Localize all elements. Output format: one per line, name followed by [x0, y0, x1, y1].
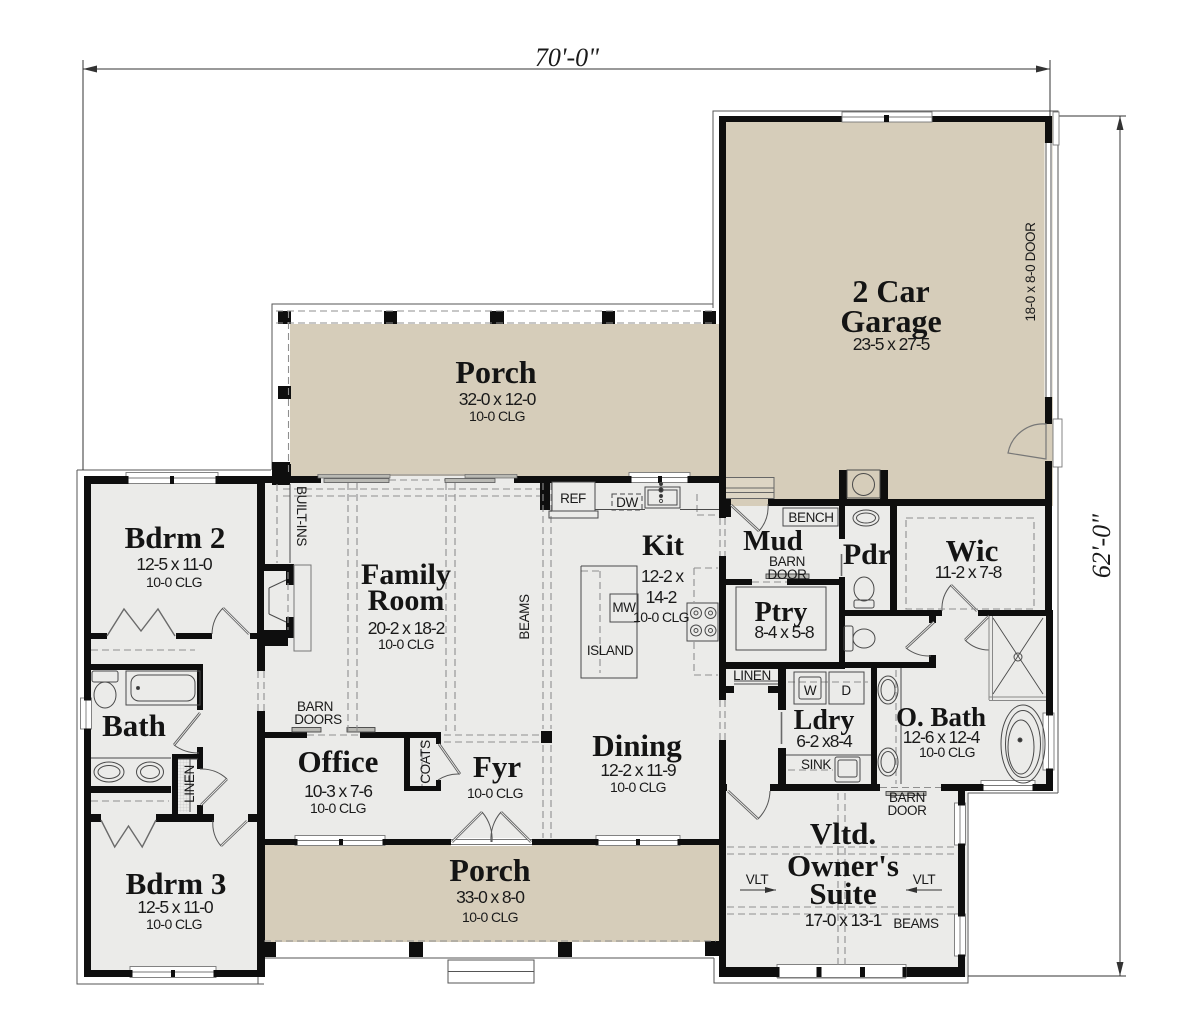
- svg-text:Bath: Bath: [102, 708, 166, 743]
- svg-text:MW: MW: [612, 600, 636, 615]
- svg-text:32-0 x 12-0: 32-0 x 12-0: [459, 389, 537, 409]
- svg-text:10-0 CLG: 10-0 CLG: [378, 636, 434, 652]
- svg-text:10-0 CLG: 10-0 CLG: [610, 779, 666, 795]
- svg-text:33-0 x 8-0: 33-0 x 8-0: [456, 887, 525, 907]
- svg-text:17-0 x 13-1: 17-0 x 13-1: [805, 910, 882, 930]
- svg-text:Vltd.: Vltd.: [810, 816, 876, 851]
- svg-text:Pdr: Pdr: [843, 538, 891, 571]
- svg-text:Bdrm 3: Bdrm 3: [126, 866, 227, 901]
- svg-text:Kit: Kit: [642, 529, 684, 562]
- svg-text:DOOR: DOOR: [768, 567, 808, 582]
- svg-text:DOOR: DOOR: [888, 803, 928, 818]
- svg-text:6-2 x8-4: 6-2 x8-4: [796, 731, 853, 751]
- svg-text:10-0 CLG: 10-0 CLG: [146, 574, 202, 590]
- svg-text:DOORS: DOORS: [294, 712, 342, 727]
- svg-text:VLT: VLT: [746, 872, 769, 887]
- svg-text:LINEN: LINEN: [182, 765, 197, 803]
- svg-text:8-4 x 5-8: 8-4 x 5-8: [754, 622, 814, 642]
- svg-text:10-0 CLG: 10-0 CLG: [919, 744, 975, 760]
- svg-text:Bdrm 2: Bdrm 2: [125, 520, 226, 555]
- svg-text:14-2: 14-2: [646, 587, 677, 607]
- svg-text:10-0 CLG: 10-0 CLG: [146, 916, 202, 932]
- svg-text:SINK: SINK: [801, 757, 831, 772]
- svg-text:Office: Office: [298, 744, 379, 779]
- svg-text:Room: Room: [368, 584, 445, 617]
- svg-text:BUILT-INS: BUILT-INS: [294, 486, 309, 546]
- svg-text:10-0 CLG: 10-0 CLG: [467, 785, 523, 801]
- svg-text:REF: REF: [560, 491, 586, 506]
- svg-text:Dining: Dining: [592, 728, 682, 763]
- svg-text:18-0 x 8-0 DOOR: 18-0 x 8-0 DOOR: [1023, 222, 1038, 322]
- svg-text:VLT: VLT: [913, 872, 936, 887]
- svg-text:62'-0": 62'-0": [1087, 514, 1116, 578]
- svg-text:12-2 x 11-9: 12-2 x 11-9: [600, 760, 675, 780]
- svg-text:12-5 x 11-0: 12-5 x 11-0: [136, 554, 212, 574]
- svg-text:Fyr: Fyr: [473, 749, 521, 784]
- svg-text:BEAMS: BEAMS: [893, 916, 939, 931]
- svg-text:10-0 CLG: 10-0 CLG: [469, 408, 525, 424]
- svg-text:10-0 CLG: 10-0 CLG: [633, 609, 689, 625]
- svg-text:12-2 x: 12-2 x: [641, 566, 684, 586]
- svg-text:ISLAND: ISLAND: [587, 643, 634, 658]
- svg-text:20-2 x 18-2: 20-2 x 18-2: [368, 618, 445, 638]
- svg-text:W: W: [804, 683, 817, 698]
- svg-text:BEAMS: BEAMS: [517, 594, 532, 640]
- svg-text:Porch: Porch: [455, 354, 536, 390]
- svg-text:23-5 x 27-5: 23-5 x 27-5: [853, 334, 930, 354]
- svg-text:11-2 x 7-8: 11-2 x 7-8: [935, 562, 1002, 582]
- svg-text:12-5 x 11-0: 12-5 x 11-0: [137, 897, 213, 917]
- svg-text:D: D: [841, 683, 851, 698]
- svg-text:LINEN: LINEN: [733, 668, 771, 683]
- svg-text:70'-0": 70'-0": [535, 43, 599, 72]
- svg-text:BENCH: BENCH: [788, 510, 833, 525]
- svg-text:DW: DW: [616, 495, 638, 510]
- svg-text:10-0 CLG: 10-0 CLG: [462, 909, 518, 925]
- svg-text:Porch: Porch: [449, 852, 530, 888]
- svg-text:Mud: Mud: [743, 525, 803, 557]
- svg-text:10-0 CLG: 10-0 CLG: [310, 800, 366, 816]
- svg-text:10-3 x 7-6: 10-3 x 7-6: [304, 781, 372, 801]
- svg-text:Suite: Suite: [809, 876, 876, 911]
- svg-text:COATS: COATS: [418, 740, 433, 784]
